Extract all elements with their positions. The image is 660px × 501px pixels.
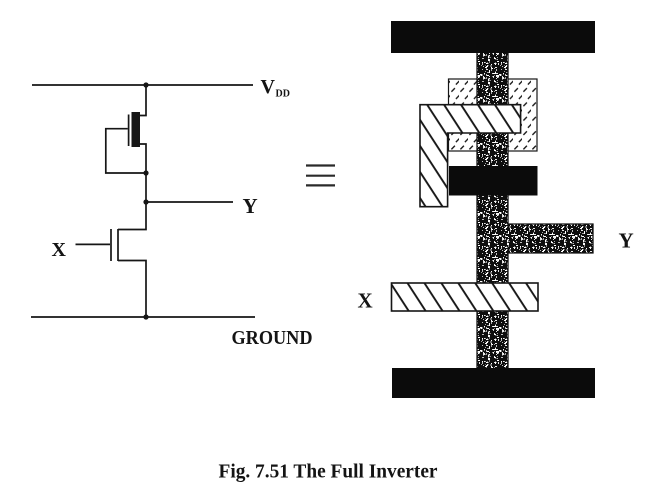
- svg-text:Y: Y: [619, 229, 634, 253]
- svg-text:GROUND: GROUND: [232, 327, 313, 349]
- svg-text:V: V: [261, 76, 276, 98]
- svg-text:X: X: [358, 289, 373, 313]
- svg-text:Fig. 7.51 The Full Inverter: Fig. 7.51 The Full Inverter: [219, 461, 438, 483]
- svg-text:Y: Y: [243, 194, 258, 218]
- svg-text:DD: DD: [276, 88, 290, 99]
- svg-text:X: X: [52, 239, 67, 261]
